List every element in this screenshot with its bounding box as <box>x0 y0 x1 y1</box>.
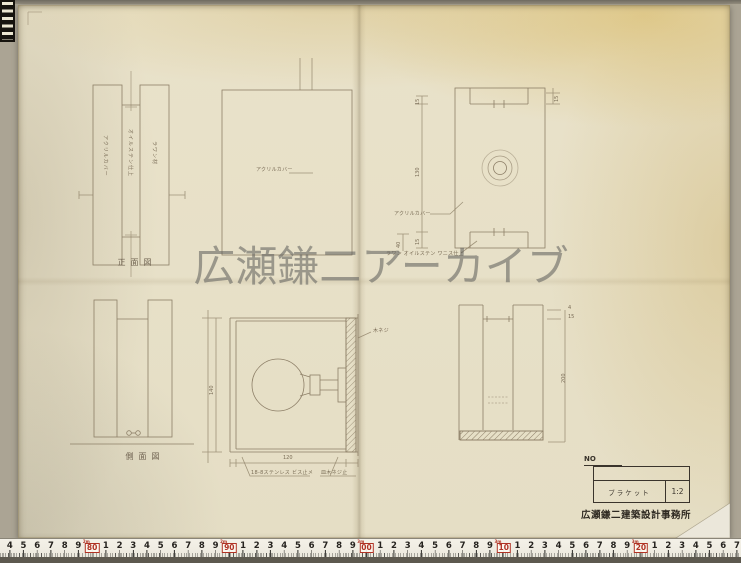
table-edge <box>0 557 741 563</box>
tape-cm-label: 3 <box>542 542 548 551</box>
tape-cm-label: 8 <box>62 542 68 551</box>
drawing-sheet: 正面図 側面図 アクリルカバー オイルステン仕上 ラワン材 アクリルカバー アク… <box>18 5 730 538</box>
tape-cm-label: 7 <box>322 542 328 551</box>
tape-meter-label: 3m <box>357 540 364 544</box>
tape-cm-label: 5 <box>158 542 164 551</box>
side-section-dim-t2: 15 <box>568 314 574 320</box>
tape-cm-label: 3 <box>268 542 274 551</box>
tape-cm-label: 9 <box>487 542 493 551</box>
tape-cm-label: 9 <box>213 542 219 551</box>
tape-cm-label: 6 <box>309 542 315 551</box>
tape-cm-label: 3 <box>130 542 136 551</box>
side-view-caption: 側面図 <box>114 451 176 462</box>
tape-cm-label: 3 <box>405 542 411 551</box>
archive-photo: 正面図 側面図 アクリルカバー オイルステン仕上 ラワン材 アクリルカバー アク… <box>0 0 741 563</box>
title-block-scale: 1:2 <box>665 481 689 502</box>
tape-cm-label: 3 <box>679 542 685 551</box>
tape-cm-label: 8 <box>199 542 205 551</box>
tape-cm-label: 7 <box>185 542 191 551</box>
front-view-left-material-label: アクリルカバー <box>102 135 109 193</box>
tape-cm-label: 4 <box>144 542 150 551</box>
tape-cm-label: 9 <box>75 542 81 551</box>
tape-cm-label: 5 <box>707 542 713 551</box>
archive-watermark: 広瀬鎌二アーカイブ <box>190 244 572 290</box>
tape-cm-label: 7 <box>734 542 740 551</box>
tape-cm-label: 5 <box>295 542 301 551</box>
plan-dim-top: 15 <box>415 99 421 105</box>
tape-cm-label: 9 <box>350 542 356 551</box>
tape-cm-label: 1 <box>652 542 658 551</box>
tape-cm-label: 6 <box>720 542 726 551</box>
tape-cm-label: 4 <box>556 542 562 551</box>
tape-decade-label: 802m <box>85 543 99 553</box>
tape-cm-label: 4 <box>693 542 699 551</box>
design-office-stamp: 広瀬鎌二建築設計事務所 <box>576 507 696 521</box>
tape-decade-label: 902m <box>222 543 236 553</box>
tape-cm-label: 2 <box>528 542 534 551</box>
tape-cm-label: 2 <box>254 542 260 551</box>
tape-decade-label: 103m <box>497 543 511 553</box>
tape-cm-label: 7 <box>460 542 466 551</box>
tape-cm-label: 8 <box>473 542 479 551</box>
tape-cm-label: 9 <box>624 542 630 551</box>
title-block-no-label: NO <box>584 455 596 463</box>
tape-meter-label: 3m <box>632 540 639 544</box>
tape-cm-label: 8 <box>336 542 342 551</box>
tape-meter-label: 2m <box>83 540 90 544</box>
front-view-caption: 正面図 <box>106 257 168 268</box>
photo-scale-bar <box>0 0 15 42</box>
title-block: ブラケット 1:2 <box>593 466 690 503</box>
plan-dim-right: 15 <box>554 96 560 102</box>
bulb-section-dim-height: 140 <box>209 385 215 395</box>
photo-backing-edge <box>0 0 741 4</box>
tape-cm-label: 4 <box>7 542 13 551</box>
tape-decade-label: 203m <box>634 543 648 553</box>
photo-scale-bar-ticks <box>2 2 13 40</box>
cover-view-label: アクリルカバー <box>256 166 293 173</box>
tape-cm-label: 6 <box>583 542 589 551</box>
bulb-section-dim-width: 120 <box>283 455 293 461</box>
bulb-section-note-right: 皿木ネジ止 <box>321 469 348 476</box>
tape-cm-label: 5 <box>432 542 438 551</box>
tape-cm-label: 6 <box>446 542 452 551</box>
tape-meter-label: 3m <box>495 540 502 544</box>
tape-meter-label: 2m <box>220 540 227 544</box>
title-block-drawing-title: ブラケット <box>594 487 665 497</box>
side-section-dim-t1: 4 <box>568 305 571 311</box>
tape-cm-label: 7 <box>48 542 54 551</box>
tape-cm-label: 8 <box>611 542 617 551</box>
tape-cm-label: 1 <box>240 542 246 551</box>
bulb-section-screw-label: 木ネジ <box>373 327 389 334</box>
tape-cm-label: 1 <box>103 542 109 551</box>
tape-cm-label: 2 <box>391 542 397 551</box>
tape-cm-label: 6 <box>34 542 40 551</box>
tape-cm-label: 7 <box>597 542 603 551</box>
title-block-empty-row <box>594 467 689 481</box>
tape-cm-label: 5 <box>21 542 27 551</box>
side-section-dim-height: 200 <box>561 373 567 383</box>
tape-cm-label: 2 <box>665 542 671 551</box>
tape-cm-label: 1 <box>377 542 383 551</box>
plan-view-cover-label: アクリルカバー <box>394 210 431 217</box>
front-view-center-material-label: オイルステン仕上 <box>127 129 134 197</box>
tape-cm-label: 2 <box>117 542 123 551</box>
tape-cm-label: 6 <box>171 542 177 551</box>
tape-cm-label: 5 <box>569 542 575 551</box>
front-view-right-material-label: ラワン材 <box>151 141 158 191</box>
tape-cm-label: 4 <box>418 542 424 551</box>
tape-decade-label: 003m <box>359 543 373 553</box>
plan-dim-mid: 130 <box>415 167 421 177</box>
tape-cm-label: 4 <box>281 542 287 551</box>
tape-cm-label: 1 <box>514 542 520 551</box>
bulb-section-note-left: 18-8ステンレス ビス止メ <box>251 469 313 476</box>
measuring-tape: 456789802m123456789902m123456789003m1234… <box>0 538 741 557</box>
